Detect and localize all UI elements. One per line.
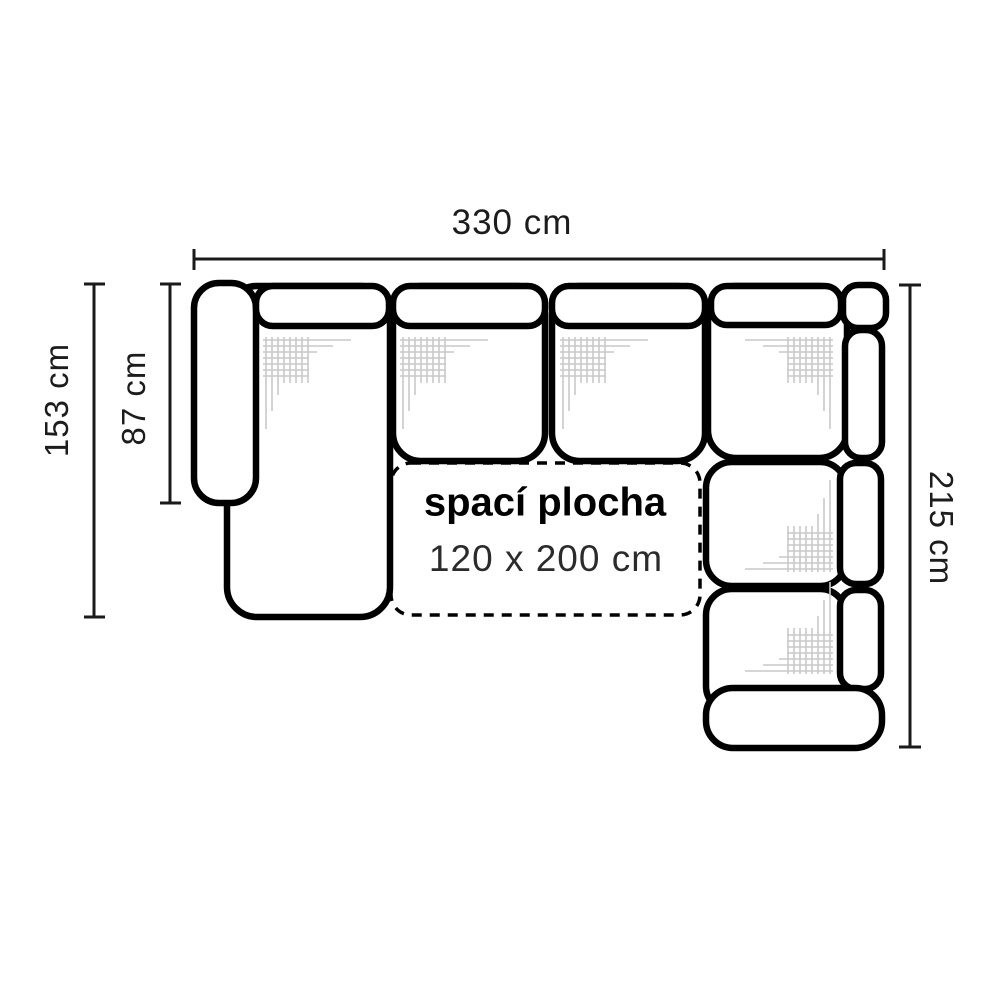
dim-label-depth-right-total: 215 cm bbox=[922, 471, 960, 585]
dim-label-depth-left-seat: 87 cm bbox=[115, 351, 153, 446]
corner-side-cushion-top bbox=[843, 285, 886, 328]
right-seat2-backrest-cushion bbox=[840, 590, 881, 689]
dim-label-depth-left-total: 153 cm bbox=[38, 343, 76, 457]
right-seat1-backrest-cushion bbox=[840, 463, 881, 584]
seat1-backrest-cushion bbox=[393, 286, 545, 326]
seat2-backrest-cushion bbox=[552, 286, 705, 326]
bottom-armrest bbox=[706, 688, 882, 748]
dim-line-left-inner bbox=[160, 284, 181, 503]
right-seat1-body bbox=[706, 462, 846, 586]
sleeping-area-size: 120 x 200 cm bbox=[429, 538, 663, 580]
dim-label-width-top: 330 cm bbox=[452, 203, 573, 243]
sofa-dimension-diagram: 330 cm 153 cm 87 cm 215 cm spací plocha … bbox=[0, 0, 1000, 1000]
dim-line-left-outer bbox=[84, 284, 105, 617]
corner-backrest-cushion bbox=[711, 286, 841, 325]
sleeping-area-title: spací plocha bbox=[424, 481, 666, 526]
dim-line-right bbox=[899, 285, 921, 747]
dim-line-top bbox=[194, 249, 884, 270]
left-armrest bbox=[194, 283, 256, 503]
chaise-backrest-cushion bbox=[256, 286, 389, 326]
corner-side-backrest-cushion bbox=[845, 330, 882, 458]
